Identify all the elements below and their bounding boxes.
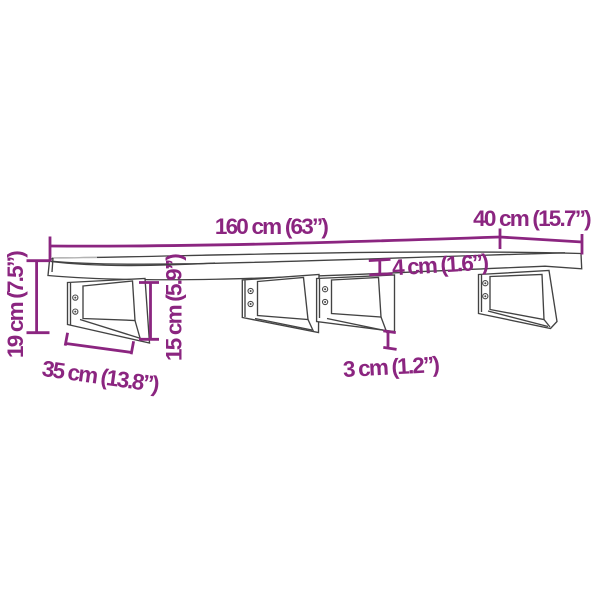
svg-text:40 cm (15.7”): 40 cm (15.7”) — [473, 206, 591, 231]
svg-text:160 cm (63”): 160 cm (63”) — [215, 214, 329, 239]
svg-text:19 cm (7.5”): 19 cm (7.5”) — [3, 251, 28, 358]
svg-text:15 cm (5.9”): 15 cm (5.9”) — [162, 254, 187, 361]
svg-text:3 cm (1.2”): 3 cm (1.2”) — [342, 352, 440, 382]
